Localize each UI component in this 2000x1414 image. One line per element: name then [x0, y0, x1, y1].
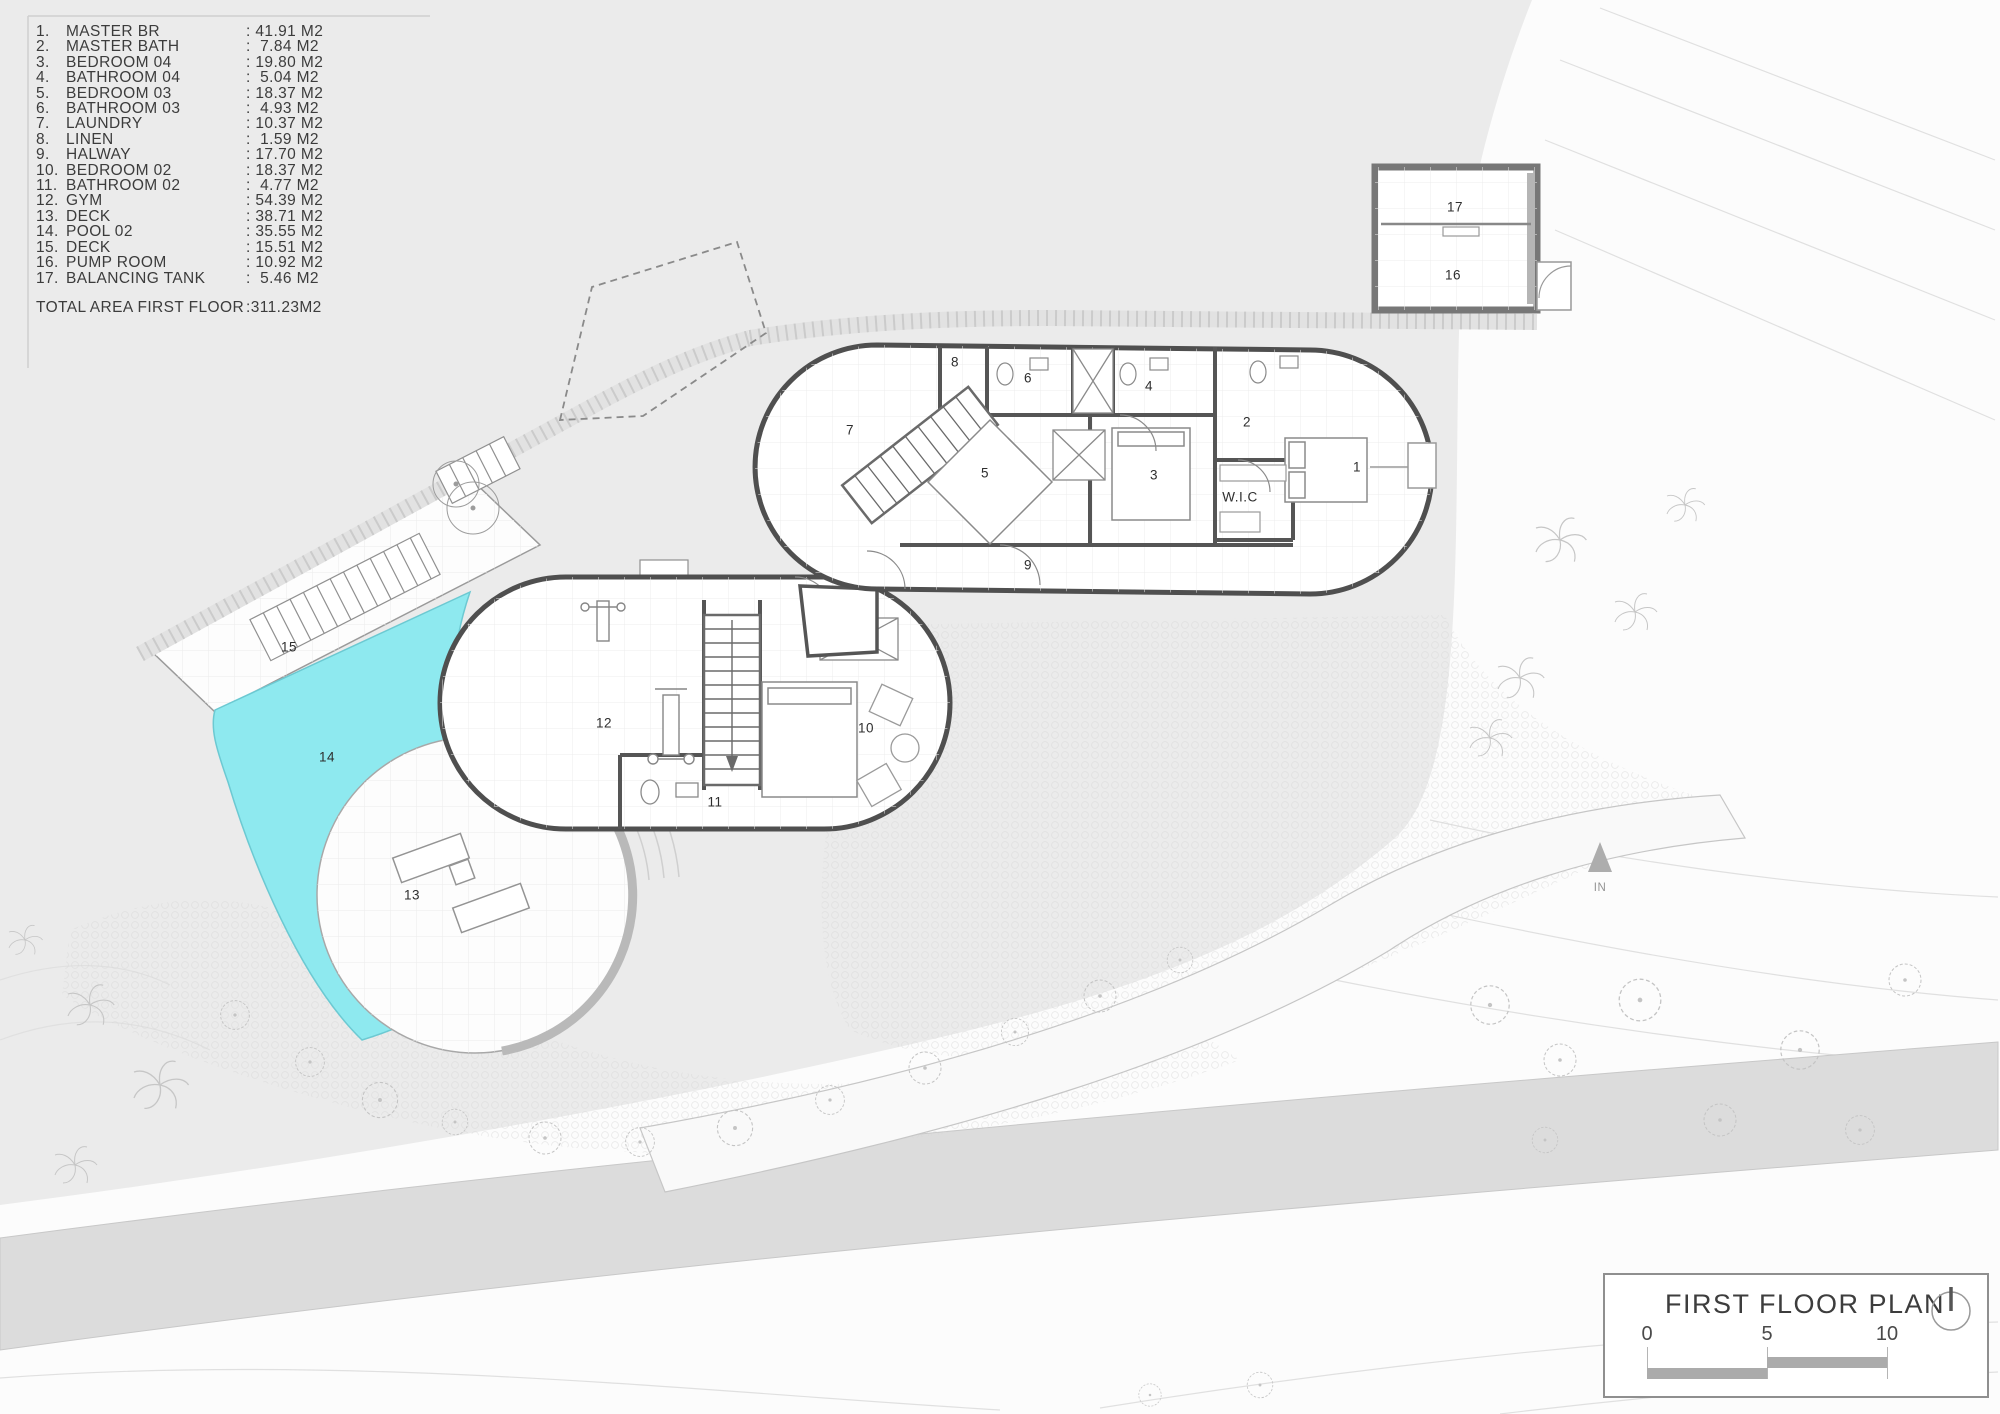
- legend-row: 2.MASTER BATH: 7.84 M2: [36, 39, 323, 54]
- legend-row: 12.GYM: 54.39 M2: [36, 193, 323, 208]
- room-legend-rows: 1.MASTER BR: 41.91 M22.MASTER BATH: 7.84…: [36, 24, 323, 286]
- scale-bar-segment-1: [1647, 1368, 1767, 1379]
- legend-row: 7.LAUNDRY: 10.37 M2: [36, 116, 323, 131]
- room-label-1: 1: [1353, 459, 1361, 474]
- room-label-4: 4: [1145, 379, 1153, 394]
- room-label-7: 7: [846, 422, 854, 437]
- room-label-5: 5: [981, 465, 989, 480]
- legend-row: 13.DECK: 38.71 M2: [36, 209, 323, 224]
- room-label-2: 2: [1243, 415, 1251, 430]
- room-label-w-i-c: W.I.C: [1222, 490, 1258, 505]
- north-arrow-icon: [1927, 1283, 1975, 1335]
- gym-staircase: [704, 615, 760, 785]
- floor-plan-sheet: 1.MASTER BR: 41.91 M22.MASTER BATH: 7.84…: [0, 0, 2000, 1414]
- room-label-14: 14: [319, 750, 335, 765]
- legend-row: 5.BEDROOM 03: 18.37 M2: [36, 86, 323, 101]
- legend-total-row: TOTAL AREA FIRST FLOOR :311.23M2: [36, 300, 323, 316]
- room-label-10: 10: [858, 721, 874, 736]
- room-label-12: 12: [596, 716, 612, 731]
- room-label-15: 15: [281, 639, 297, 654]
- legend-row: 3.BEDROOM 04: 19.80 M2: [36, 55, 323, 70]
- scale-tick-5: 5: [1761, 1323, 1772, 1346]
- room-label-8: 8: [951, 354, 959, 369]
- corridor: [800, 586, 877, 656]
- room-label-16: 16: [1445, 268, 1461, 283]
- drawing-title: FIRST FLOOR PLAN: [1665, 1289, 1945, 1320]
- room-label-17: 17: [1447, 200, 1463, 215]
- legend-row: 15.DECK: 15.51 M2: [36, 240, 323, 255]
- legend-row: 4.BATHROOM 04: 5.04 M2: [36, 70, 323, 85]
- legend-row: 10.BEDROOM 02: 18.37 M2: [36, 163, 323, 178]
- scale-bar-segment-2: [1767, 1357, 1887, 1368]
- legend-row: 1.MASTER BR: 41.91 M2: [36, 24, 323, 39]
- legend-total-value: :311.23M2: [246, 300, 323, 316]
- legend-row: 17.BALANCING TANK: 5.46 M2: [36, 271, 323, 286]
- scale-tick-0: 0: [1641, 1323, 1652, 1346]
- room-label-6: 6: [1024, 370, 1032, 385]
- legend-total-label: TOTAL AREA FIRST FLOOR: [36, 300, 246, 316]
- room-label-11: 11: [707, 794, 722, 809]
- title-block: FIRST FLOOR PLAN 0 5 10: [1603, 1273, 1989, 1398]
- scale-tickline: [1887, 1347, 1888, 1379]
- room-label-in: IN: [1594, 882, 1607, 894]
- room-legend: 1.MASTER BR: 41.91 M22.MASTER BATH: 7.84…: [36, 24, 323, 316]
- legend-row: 11.BATHROOM 02: 4.77 M2: [36, 178, 323, 193]
- legend-row: 8.LINEN: 1.59 M2: [36, 132, 323, 147]
- room-label-13: 13: [404, 888, 420, 903]
- room-label-9: 9: [1024, 557, 1032, 572]
- legend-row: 6.BATHROOM 03: 4.93 M2: [36, 101, 323, 116]
- legend-row: 14.POOL 02: 35.55 M2: [36, 224, 323, 239]
- legend-row: 9.HALWAY: 17.70 M2: [36, 147, 323, 162]
- scale-tick-10: 10: [1876, 1323, 1898, 1346]
- room-label-3: 3: [1150, 468, 1158, 483]
- bed-room10: [762, 682, 857, 797]
- legend-row: 16.PUMP ROOM: 10.92 M2: [36, 255, 323, 270]
- bedroom-wing: [755, 345, 1436, 594]
